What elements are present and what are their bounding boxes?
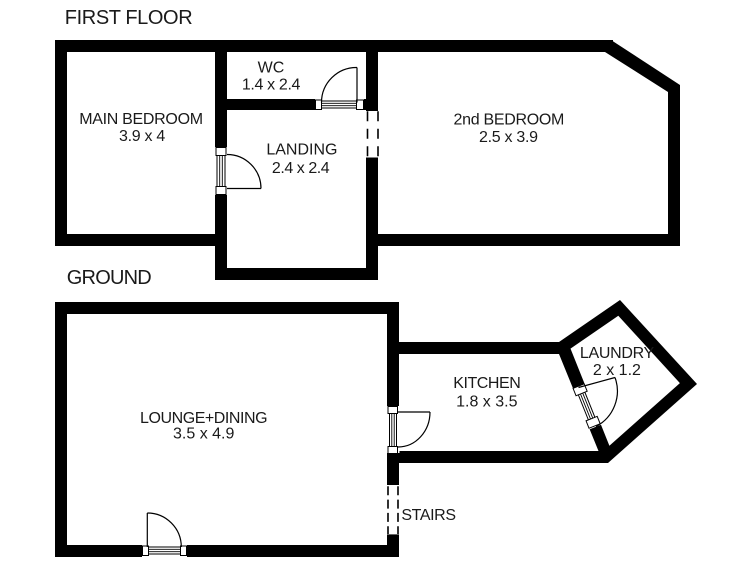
- svg-text:LOUNGE+DINING: LOUNGE+DINING: [140, 410, 267, 427]
- svg-text:1.4 x 2.4: 1.4 x 2.4: [242, 77, 301, 94]
- svg-text:FIRST FLOOR: FIRST FLOOR: [65, 7, 192, 29]
- svg-text:2.4 x 2.4: 2.4 x 2.4: [272, 160, 330, 177]
- svg-text:GROUND: GROUND: [67, 267, 151, 289]
- svg-text:KITCHEN: KITCHEN: [453, 375, 520, 392]
- svg-text:3.5 x 4.9: 3.5 x 4.9: [173, 426, 234, 443]
- svg-text:2nd BEDROOM: 2nd BEDROOM: [454, 112, 565, 129]
- svg-text:3.9 x 4: 3.9 x 4: [119, 128, 165, 145]
- svg-text:1.8 x 3.5: 1.8 x 3.5: [456, 394, 517, 411]
- svg-text:2.5 x 3.9: 2.5 x 3.9: [479, 129, 538, 146]
- svg-text:STAIRS: STAIRS: [401, 507, 455, 524]
- svg-text:LAUNDRY: LAUNDRY: [580, 345, 655, 362]
- svg-text:2 x 1.2: 2 x 1.2: [593, 362, 641, 379]
- svg-text:MAIN BEDROOM: MAIN BEDROOM: [79, 111, 203, 128]
- svg-text:LANDING: LANDING: [266, 142, 337, 159]
- svg-text:WC: WC: [258, 60, 285, 77]
